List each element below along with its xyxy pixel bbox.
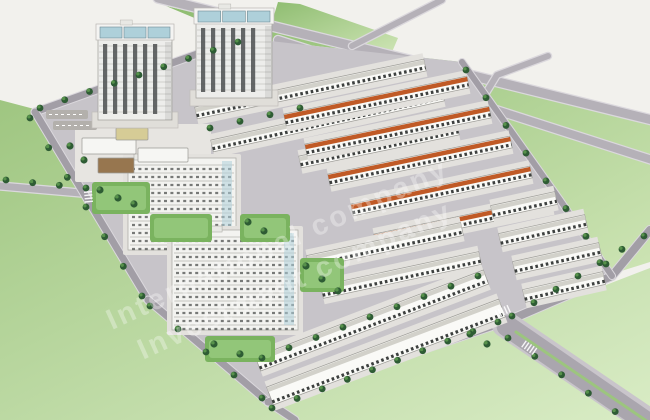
tree-highlight (370, 367, 373, 370)
tree-highlight (531, 300, 534, 303)
tower-window-strip (143, 44, 147, 114)
tree-highlight (83, 204, 86, 207)
tower-window-strip (153, 44, 157, 114)
tower-shade-side (165, 42, 172, 120)
tree-highlight (121, 263, 124, 266)
tree-highlight (231, 372, 234, 375)
tree-highlight (345, 376, 348, 379)
tree-highlight (484, 341, 488, 345)
crosswalk-stripe (84, 195, 92, 196)
tree-highlight (65, 174, 68, 177)
tree-highlight (87, 89, 90, 92)
tree-highlight (259, 395, 262, 398)
tree-highlight (115, 195, 119, 199)
tower-window-strip (231, 28, 235, 92)
tree-highlight (186, 56, 189, 59)
tree-highlight (57, 182, 60, 185)
tree-highlight (245, 219, 249, 223)
tree-highlight (30, 180, 33, 183)
tree-highlight (3, 177, 6, 180)
tree-highlight (395, 357, 398, 360)
tree-highlight (37, 105, 40, 108)
tree-highlight (583, 233, 586, 236)
tree-highlight (603, 261, 606, 264)
tree-highlight (420, 348, 423, 351)
tree-highlight (597, 260, 600, 263)
school-building (82, 138, 136, 154)
tower-window-strip (103, 44, 107, 114)
tree-highlight (543, 178, 546, 181)
tree-highlight (62, 97, 65, 100)
courtyard-lawn-inner (154, 218, 208, 238)
tree-highlight (335, 288, 339, 292)
tower-window-strip (123, 44, 127, 114)
tree-highlight (46, 145, 49, 148)
tree-highlight (553, 286, 556, 289)
tree-highlight (294, 396, 297, 399)
tree-highlight (102, 234, 105, 237)
crosswalk-stripe (85, 198, 93, 199)
tree-highlight (259, 355, 262, 358)
tree-highlight (448, 283, 451, 286)
masterplan-svg: International companyInvestment company (0, 0, 650, 420)
tree-highlight (67, 143, 71, 147)
tree-highlight (467, 331, 471, 335)
tower-roof-box (120, 20, 132, 25)
tree-highlight (161, 64, 164, 67)
tree-highlight (619, 246, 622, 249)
tree-highlight (563, 206, 566, 209)
tree-highlight (475, 273, 478, 276)
sports-court (116, 128, 148, 140)
crosswalk-stripe (84, 192, 92, 193)
tree-highlight (27, 115, 30, 118)
masterplan-render: International companyInvestment company (0, 0, 650, 420)
tree-highlight (267, 112, 270, 115)
tower-crown-glass (247, 11, 270, 22)
tower-roof-box (219, 4, 231, 9)
tree-highlight (237, 118, 240, 121)
tree-highlight (463, 67, 466, 70)
tree-highlight (367, 314, 370, 317)
tree-highlight (641, 233, 644, 236)
tower-crown-glass (148, 27, 170, 38)
tower-window-strip (201, 28, 205, 92)
tower-window-strip (241, 28, 245, 92)
tree-highlight (612, 409, 615, 412)
tree-highlight (131, 201, 135, 205)
tower-crown-glass (124, 27, 146, 38)
tree-highlight (83, 185, 86, 188)
tower-crown-glass (100, 27, 122, 38)
tower-shade-side (265, 26, 272, 98)
tree-highlight (319, 386, 322, 389)
tree-highlight (575, 273, 578, 276)
tree-highlight (503, 123, 506, 126)
tree-highlight (394, 304, 397, 307)
tree-highlight (483, 95, 486, 98)
tree-highlight (97, 187, 101, 191)
tower-window-strip (133, 44, 137, 114)
tree-highlight (297, 105, 300, 108)
tree-highlight (210, 47, 213, 50)
tree-highlight (235, 39, 238, 42)
tower-window-strip (211, 28, 215, 92)
tree-highlight (136, 72, 139, 75)
tree-highlight (111, 80, 114, 83)
tree-highlight (523, 150, 526, 153)
crosswalk-stripe (85, 201, 93, 202)
tower-crown-glass (223, 11, 246, 22)
tower-window-strip (221, 28, 225, 92)
tree-highlight (286, 345, 289, 348)
tree-highlight (559, 372, 562, 375)
tree-highlight (261, 228, 265, 232)
tree-highlight (211, 341, 215, 345)
tree-highlight (203, 349, 206, 352)
tower-window-strip (251, 28, 255, 92)
clubhouse-roof (98, 158, 134, 173)
tower-window-strip (113, 44, 117, 114)
tree-highlight (421, 294, 424, 297)
tree-highlight (509, 313, 512, 316)
tree-highlight (340, 324, 343, 327)
tree-highlight (586, 390, 589, 393)
tower-crown-glass (198, 11, 221, 22)
tree-highlight (505, 335, 508, 338)
tree-highlight (495, 319, 498, 322)
school-building (138, 148, 188, 162)
tree-highlight (313, 335, 316, 338)
tree-highlight (269, 405, 272, 408)
tree-highlight (445, 338, 448, 341)
tree-highlight (81, 157, 85, 161)
tree-highlight (237, 351, 241, 355)
tree-highlight (207, 125, 210, 128)
